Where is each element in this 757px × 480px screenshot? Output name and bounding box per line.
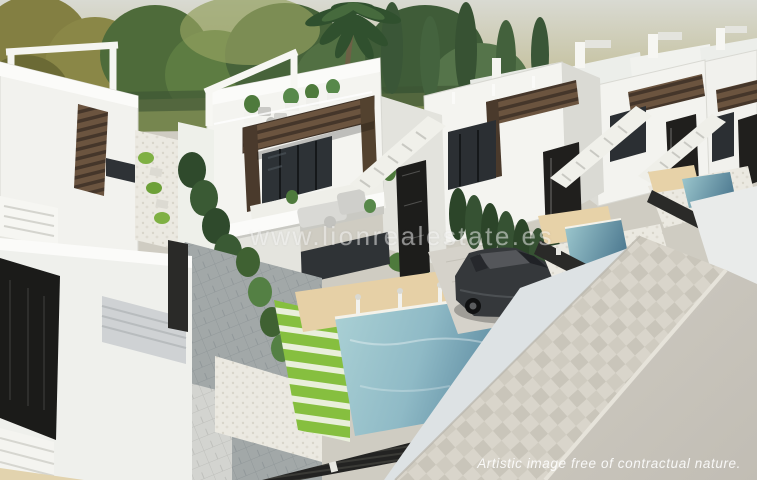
render-image: www.lionrealestate.es Artistic image fre… xyxy=(0,0,757,480)
dark-pillar xyxy=(168,240,188,332)
foreground-left-building xyxy=(0,238,192,480)
black-feature-wall xyxy=(0,258,60,440)
villa-scene xyxy=(0,0,757,480)
